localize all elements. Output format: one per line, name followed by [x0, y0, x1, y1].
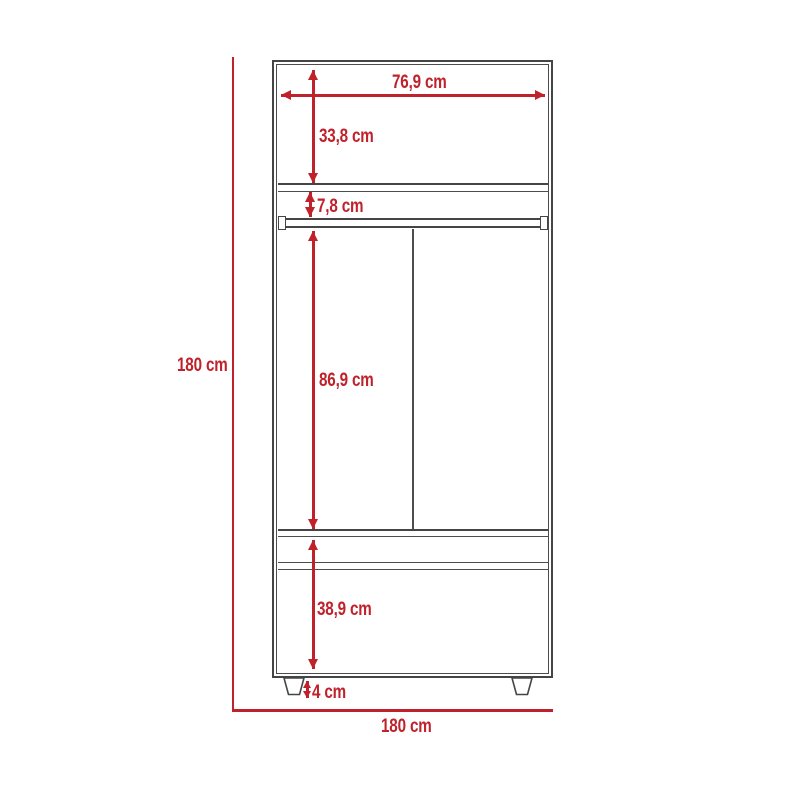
- upper-section-arrow: [312, 70, 315, 183]
- drawer-section-label: 38,9 cm: [317, 600, 372, 619]
- middle-shelf: [278, 529, 548, 537]
- rod-bracket-left: [278, 216, 286, 230]
- rod-bracket-right: [540, 216, 548, 230]
- leg-height-label: 4 cm: [312, 683, 346, 702]
- rod-gap-label: 7,8 cm: [317, 197, 363, 216]
- drawer-section-arrow: [312, 540, 315, 669]
- overall-width-label: 180 cm: [381, 717, 432, 736]
- upper-shelf: [278, 183, 548, 192]
- width-extent-line: [232, 709, 554, 712]
- hanging-section-arrow: [312, 231, 315, 529]
- overall-height-label: 180 cm: [177, 356, 228, 375]
- dimension-diagram: 76,9 cm 33,8 cm 7,8 cm 86,9 cm 38,9 cm 4…: [0, 0, 800, 800]
- drawer-top-edge: [278, 562, 548, 570]
- hanging-section-label: 86,9 cm: [319, 371, 374, 390]
- height-extent-line: [232, 57, 235, 712]
- leg-shape: [511, 677, 533, 696]
- width-dimension-arrow: [281, 94, 545, 97]
- leg-shape: [283, 677, 305, 696]
- leg-left: [283, 677, 305, 696]
- leg-height-arrow: [306, 681, 309, 698]
- center-divider: [412, 229, 414, 530]
- upper-section-label: 33,8 cm: [319, 127, 374, 146]
- hanging-rod: [278, 218, 548, 228]
- width-dimension-label: 76,9 cm: [392, 73, 447, 92]
- leg-right: [511, 677, 533, 696]
- rod-gap-arrow: [309, 192, 312, 217]
